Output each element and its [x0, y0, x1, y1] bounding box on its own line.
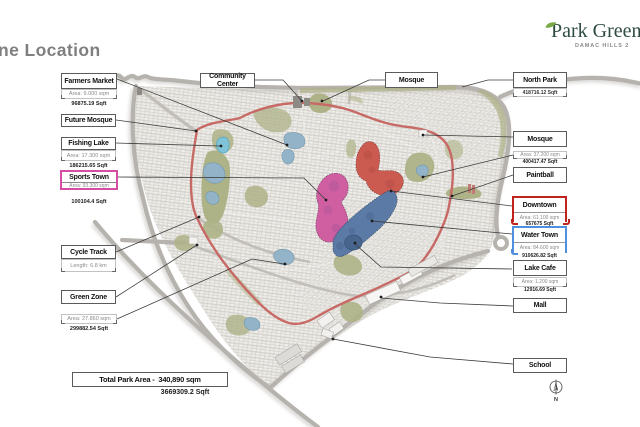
svg-text:N: N [554, 397, 558, 403]
